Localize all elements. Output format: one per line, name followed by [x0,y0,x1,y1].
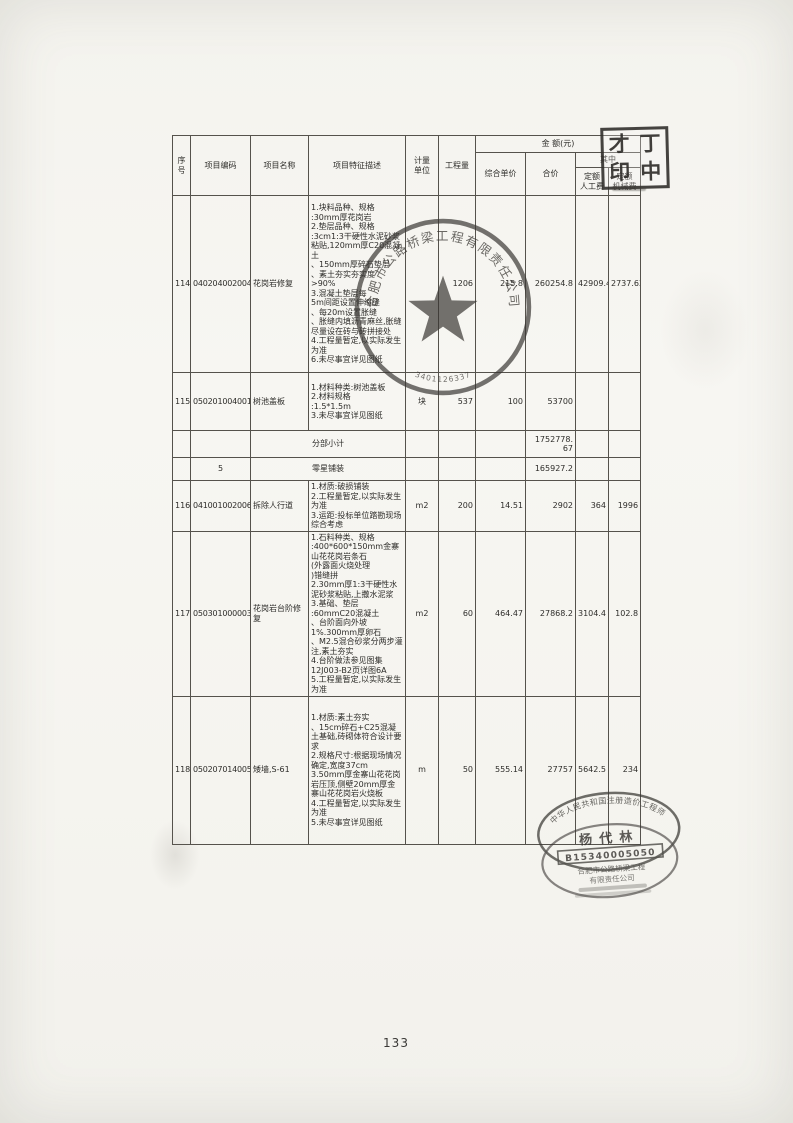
subtotal-row: 分部小计 1752778. 67 [173,431,641,458]
cell-empty [439,431,476,458]
cell-empty [576,458,609,481]
cell-unit: m2 [406,481,439,532]
cell-empty [439,458,476,481]
cell-empty [476,458,526,481]
cell-labor: 364 [576,481,609,532]
square-name-seal: 才 丁 印 中 [600,126,670,190]
seal-char: 才 [608,134,630,156]
cell-unit-price: 464.47 [476,531,526,696]
table-header: 序 号 项目编码 项目名称 项目特征描述 计量 单位 工程量 金 额(元) 综合… [173,136,641,196]
section-label: 零星铺装 [251,458,406,481]
cell-unit-price: 555.14 [476,696,526,844]
cell-machine: 102.8 [609,531,641,696]
cell-name: 花岗岩台阶修复 [251,531,309,696]
col-header-total: 合价 [526,153,576,196]
cell-code: 050201004001 [191,373,251,431]
cell-unit: m [406,696,439,844]
cell-serial: 116 [173,481,191,532]
col-header-qty: 工程量 [439,136,476,196]
scanned-document-page: 序 号 项目编码 项目名称 项目特征描述 计量 单位 工程量 金 额(元) 综合… [0,0,793,1123]
cell-unit: m2 [406,531,439,696]
seal-char: 丁 [639,133,661,155]
cell-name: 树池盖板 [251,373,309,431]
col-header-unit-price: 综合单价 [476,153,526,196]
col-header-feature: 项目特征描述 [309,136,406,196]
cell-feature: 1.材质:破损铺装 2.工程量暂定,以实际发生为准 3.运距:投标单位踏勘现场综… [309,481,406,532]
seal-char: 中 [640,161,662,183]
table-row-117: 117 050301000003 花岗岩台阶修复 1.石料种类、规格 :400*… [173,531,641,696]
cell-name: 花岗岩修复 [251,196,309,373]
company-round-stamp: 合肥市公路桥梁工程有限责任公司 3401126337 [352,216,534,398]
cell-labor: 3104.4 [576,531,609,696]
oval-stamp-graphic: 中华人民共和国注册造价工程师 杨代林 B15340005050 合肥市公路桥梁工… [525,781,695,918]
section-row: 5 零星铺装 165927.2 [173,458,641,481]
col-header-code: 项目编码 [191,136,251,196]
cell-labor [576,373,609,431]
star-icon [408,276,477,342]
cell-empty [173,431,191,458]
cell-name: 矮墙,S-61 [251,696,309,844]
cell-code: 050301000003 [191,531,251,696]
subtotal-label: 分部小计 [251,431,406,458]
section-total: 165927.2 [526,458,576,481]
cell-total: 2902 [526,481,576,532]
cell-empty [191,431,251,458]
ink-ghost-smudge [660,270,750,390]
stamp-number-text: 3401126337 [414,370,472,384]
page-number: 133 [346,1036,446,1050]
cell-machine: 2737.62 [609,196,641,373]
seal-char: 印 [609,162,631,184]
cell-empty [609,458,641,481]
cell-empty [406,431,439,458]
cell-code: 041001002006 [191,481,251,532]
cell-serial: 118 [173,696,191,844]
col-header-name: 项目名称 [251,136,309,196]
col-header-unit: 计量 单位 [406,136,439,196]
cell-empty [173,458,191,481]
cell-feature: 1.材质:素土夯实 、15cm碎石+C25混凝土基础,砖砌体符合设计要求 2.规… [309,696,406,844]
cell-empty [609,431,641,458]
cell-qty: 60 [439,531,476,696]
cell-empty [406,458,439,481]
engineer-title-arc: 中华人民共和国注册造价工程师 [546,791,668,826]
header-row-1: 序 号 项目编码 项目名称 项目特征描述 计量 单位 工程量 金 额(元) [173,136,641,153]
cell-qty: 50 [439,696,476,844]
cell-labor: 42909.48 [576,196,609,373]
cell-serial: 114 [173,196,191,373]
col-header-serial: 序 号 [173,136,191,196]
cell-empty [476,431,526,458]
cell-qty: 200 [439,481,476,532]
table-row-116: 116 041001002006 拆除人行道 1.材质:破损铺装 2.工程量暂定… [173,481,641,532]
round-stamp-graphic: 合肥市公路桥梁工程有限责任公司 3401126337 [352,216,534,398]
cell-serial: 115 [173,373,191,431]
cell-code: 040204002004 [191,196,251,373]
engineer-oval-stamp: 中华人民共和国注册造价工程师 杨代林 B15340005050 合肥市公路桥梁工… [525,781,695,918]
cell-machine [609,373,641,431]
cell-feature: 1.石料种类、规格 :400*600*150mm金寨山花花岗岩条石 (外露面火烧… [309,531,406,696]
cell-unit-price: 14.51 [476,481,526,532]
seal-caption-smudge [612,186,646,191]
subtotal-total: 1752778. 67 [526,431,576,458]
cell-serial: 117 [173,531,191,696]
cell-total: 27868.2 [526,531,576,696]
cell-empty [576,431,609,458]
cell-code: 050207014005 [191,696,251,844]
cell-name: 拆除人行道 [251,481,309,532]
section-code: 5 [191,458,251,481]
cell-machine: 1996 [609,481,641,532]
